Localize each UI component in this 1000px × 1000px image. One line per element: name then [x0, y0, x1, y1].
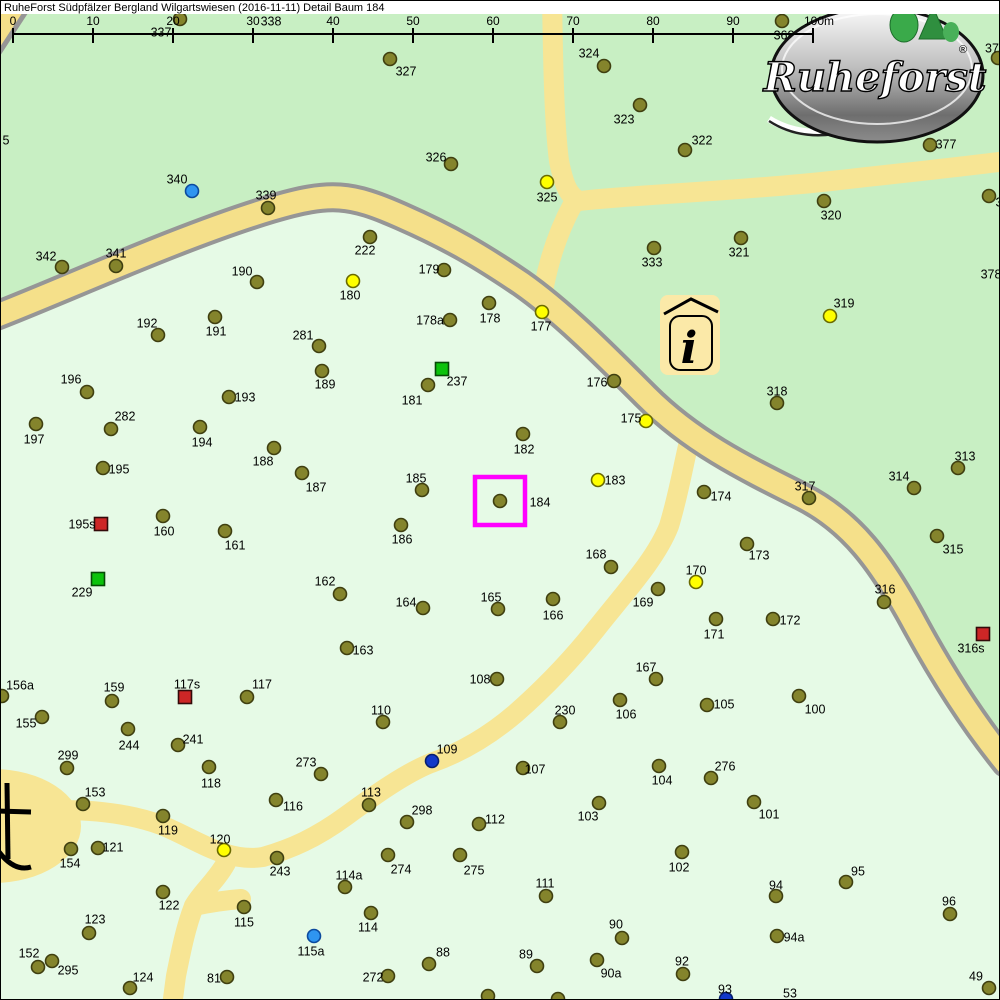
tree-label: 166	[543, 609, 564, 623]
tree-marker-159[interactable]	[106, 695, 119, 708]
forest-map: i 33733836837327324323377322326325340339…	[0, 0, 1000, 1000]
tree-label: 316s	[957, 642, 984, 656]
tree-label: 181	[402, 394, 423, 408]
tree-marker-103[interactable]	[593, 797, 606, 810]
tree-label: 237	[447, 375, 468, 389]
tree-marker-186[interactable]	[395, 519, 408, 532]
tree-marker-111[interactable]	[540, 890, 553, 903]
tree-marker-325[interactable]	[541, 176, 554, 189]
tree-marker-299[interactable]	[61, 762, 74, 775]
tree-label: 106	[616, 708, 637, 722]
tree-label: 327	[396, 65, 417, 79]
tree-marker-162[interactable]	[334, 588, 347, 601]
tree-label: 153	[85, 786, 106, 800]
tree-label: 193	[235, 391, 256, 405]
tree-marker-118[interactable]	[203, 761, 216, 774]
tree-label: 108	[470, 673, 491, 687]
tree-marker-168[interactable]	[605, 561, 618, 574]
tree-marker-115[interactable]	[238, 901, 251, 914]
tree-marker-281[interactable]	[313, 340, 326, 353]
tree-label: 179	[419, 263, 440, 277]
tree-label: 320	[821, 209, 842, 223]
tree-label: 123	[85, 913, 106, 927]
tree-marker-184[interactable]	[494, 495, 507, 508]
tree-marker-164[interactable]	[417, 602, 430, 615]
tree-marker-181[interactable]	[422, 379, 435, 392]
tree-label: 118	[201, 777, 221, 791]
tree-label: 117s	[174, 678, 200, 692]
tree-label: 95	[851, 865, 865, 879]
tree-label: 187	[306, 481, 327, 495]
tree-marker-154[interactable]	[65, 843, 78, 856]
tree-label: 244	[119, 739, 140, 753]
tree-label: 230	[555, 704, 576, 718]
tree-label: 192	[137, 317, 158, 331]
tree-label: 177	[531, 320, 552, 334]
tree-label: 170	[686, 564, 707, 578]
tree-marker-339[interactable]	[262, 202, 275, 215]
tree-marker-106[interactable]	[614, 694, 627, 707]
tree-marker-177[interactable]	[536, 306, 549, 319]
tree-label: 169	[633, 596, 654, 610]
tree-marker-340[interactable]	[186, 185, 199, 198]
tree-marker-90[interactable]	[616, 932, 629, 945]
tree-label: 282	[115, 410, 136, 424]
tree-label: 161	[225, 539, 246, 553]
tree-marker-108[interactable]	[491, 673, 504, 686]
tree-label: 318	[767, 385, 788, 399]
tree-label: 96	[942, 895, 956, 909]
map-title: RuheForst Südpfälzer Bergland Wilgartswi…	[4, 2, 385, 14]
tree-marker-116[interactable]	[270, 794, 283, 807]
tree-marker-96[interactable]	[944, 908, 957, 921]
tree-marker-104[interactable]	[653, 760, 666, 773]
scale-tick-label: 100m	[804, 14, 834, 28]
tree-label: 122	[159, 899, 180, 913]
tree-label: 163	[353, 644, 374, 658]
tree-label: 90a	[601, 967, 622, 981]
tree-label: 241	[183, 733, 204, 747]
info-icon-glyph: i	[681, 323, 698, 374]
scale-tick-label: 20	[166, 14, 180, 28]
tree-label: 175	[621, 412, 642, 426]
tree-label: 3	[996, 196, 1000, 210]
tree-marker-114[interactable]	[365, 907, 378, 920]
tree-marker-322[interactable]	[679, 144, 692, 157]
tree-marker-197[interactable]	[30, 418, 43, 431]
tree-marker-174[interactable]	[698, 486, 711, 499]
tree-label: 174	[711, 490, 732, 504]
tree-label: 316	[875, 583, 896, 597]
tree-label: 49	[969, 970, 983, 984]
tree-marker-122[interactable]	[157, 886, 170, 899]
tree-label: 162	[315, 575, 336, 589]
tree-marker-49[interactable]	[983, 982, 996, 995]
tree-marker-182[interactable]	[517, 428, 530, 441]
tree-marker-274[interactable]	[382, 849, 395, 862]
tree-label: 164	[396, 596, 417, 610]
tree-label: 113	[361, 786, 381, 800]
scale-tick-label: 80	[646, 14, 660, 28]
tree-label: 115	[234, 916, 254, 930]
tree-label: 173	[749, 549, 770, 563]
tree-label: 109	[437, 743, 458, 757]
tree-label: 159	[104, 681, 125, 695]
tree-label: 313	[955, 450, 976, 464]
tree-label: 37	[985, 42, 999, 56]
tree-label: 184	[530, 496, 551, 510]
tree-label: 92	[675, 955, 689, 969]
map-canvas: i 33733836837327324323377322326325340339…	[1, 1, 1000, 1000]
tree-label: 165	[481, 591, 502, 605]
tree-label: 176	[587, 376, 608, 390]
scale-tick-label: 60	[486, 14, 500, 28]
tree-label: 90	[609, 918, 623, 932]
tree-marker-172[interactable]	[767, 613, 780, 626]
tree-label: 81	[207, 972, 221, 986]
tree-label: 189	[315, 378, 336, 392]
tree-label: 180	[340, 289, 361, 303]
tree-label: 195s	[68, 518, 95, 532]
tree-marker-314[interactable]	[908, 482, 921, 495]
tree-label: 183	[605, 474, 626, 488]
tree-marker-117[interactable]	[241, 691, 254, 704]
scale-tick-label: 90	[726, 14, 740, 28]
tree-label: 114a	[336, 869, 363, 883]
tree-label: 324	[579, 47, 600, 61]
tree-label: 53	[783, 987, 797, 1000]
tree-marker-3[interactable]	[983, 190, 996, 203]
tree-marker-319[interactable]	[824, 310, 837, 323]
tree-marker-282[interactable]	[105, 423, 118, 436]
tree-marker-123[interactable]	[83, 927, 96, 940]
tree-label: 116	[283, 800, 303, 814]
cross-vertical	[7, 783, 8, 859]
logo-registered-mark: ®	[959, 44, 967, 56]
tree-label: 229	[72, 586, 93, 600]
tree-marker-119[interactable]	[157, 810, 170, 823]
tree-marker-171[interactable]	[710, 613, 723, 626]
tree-label: 272	[363, 971, 384, 985]
tree-label: 112	[485, 813, 505, 827]
tree-marker-326[interactable]	[445, 158, 458, 171]
tree-marker-163[interactable]	[341, 642, 354, 655]
tree-marker-295[interactable]	[46, 955, 59, 968]
tree-label: 172	[780, 614, 801, 628]
tree-label: 276	[715, 760, 736, 774]
tree-marker-166[interactable]	[547, 593, 560, 606]
tree-marker-195s[interactable]	[95, 518, 108, 531]
tree-label: 377	[936, 138, 957, 152]
tree-marker-244[interactable]	[122, 723, 135, 736]
tree-label: 185	[406, 472, 427, 486]
tree-label: 167	[636, 661, 657, 675]
tree-marker-112[interactable]	[473, 818, 486, 831]
tree-label: 104	[652, 774, 673, 788]
tree-label: 103	[578, 810, 599, 824]
scale-tick-label: 40	[326, 14, 340, 28]
tree-marker-81[interactable]	[221, 971, 234, 984]
tree-marker-183[interactable]	[592, 474, 605, 487]
tree-label: 111	[535, 877, 554, 891]
tree-marker-94a[interactable]	[771, 930, 784, 943]
tree-label: 323	[614, 113, 635, 127]
tree-marker-unlabeled[interactable]	[482, 990, 495, 1000]
tree-label: 171	[704, 628, 725, 642]
tree-marker-323[interactable]	[634, 99, 647, 112]
tree-marker-180[interactable]	[347, 275, 360, 288]
tree-marker-368[interactable]	[776, 15, 789, 28]
tree-label: 326	[426, 151, 447, 165]
tree-marker-341[interactable]	[110, 260, 123, 273]
tree-label: 319	[834, 297, 855, 311]
logo-brand-text: Ruheforst	[763, 54, 987, 101]
tree-marker-117s[interactable]	[179, 691, 192, 704]
tree-label: 325	[537, 191, 558, 205]
tree-label: 88	[436, 946, 450, 960]
tree-marker-194[interactable]	[194, 421, 207, 434]
tree-marker-178a[interactable]	[444, 314, 457, 327]
tree-label: 178a	[416, 314, 444, 328]
scale-tick-label: 50	[406, 14, 420, 28]
tree-marker-189[interactable]	[316, 365, 329, 378]
tree-label: 155	[16, 717, 37, 731]
tree-label: 186	[392, 533, 413, 547]
tree-label: 178	[480, 312, 501, 326]
tree-label: 160	[154, 525, 175, 539]
tree-label: 115a	[298, 945, 325, 959]
path-south-stub	[194, 899, 241, 906]
tree-label: 124	[133, 971, 154, 985]
tree-marker-88[interactable]	[423, 958, 436, 971]
tree-marker-105[interactable]	[701, 699, 714, 712]
tree-label: 275	[464, 864, 485, 878]
tree-label: 194	[192, 436, 213, 450]
logo-tree-icon	[943, 22, 959, 42]
tree-marker-316s[interactable]	[977, 628, 990, 641]
tree-marker-377[interactable]	[924, 139, 937, 152]
tree-label: 152	[19, 947, 40, 961]
tree-label: 110	[371, 704, 391, 718]
tree-marker-222[interactable]	[364, 231, 377, 244]
tree-marker-169[interactable]	[652, 583, 665, 596]
tree-label: 295	[58, 964, 79, 978]
tree-label: 317	[795, 480, 816, 494]
tree-label: 100	[805, 703, 826, 717]
tree-label: 93	[718, 983, 732, 997]
tree-label: 154	[60, 857, 81, 871]
tree-label: 339	[256, 189, 277, 203]
tree-label: 102	[669, 861, 690, 875]
tree-label: 188	[253, 455, 274, 469]
tree-label: 120	[210, 833, 231, 847]
tree-marker-178[interactable]	[483, 297, 496, 310]
tree-label: 321	[729, 246, 750, 260]
tree-marker-243[interactable]	[271, 852, 284, 865]
tree-label: 342	[36, 250, 57, 264]
tree-marker-113[interactable]	[363, 799, 376, 812]
tree-marker-327[interactable]	[384, 53, 397, 66]
tree-label: 322	[692, 134, 713, 148]
tree-marker-187[interactable]	[296, 467, 309, 480]
tree-label: 121	[103, 841, 124, 855]
tree-label: 333	[642, 256, 663, 270]
tree-marker-316[interactable]	[878, 596, 891, 609]
info-icon[interactable]: i	[660, 295, 720, 375]
scale-tick-label: 10	[86, 14, 100, 28]
tree-marker-196[interactable]	[81, 386, 94, 399]
cross-horizontal	[1, 811, 31, 812]
tree-label: 191	[206, 325, 227, 339]
tree-marker-229[interactable]	[92, 573, 105, 586]
tree-label: 117	[252, 678, 272, 692]
tree-marker-193[interactable]	[223, 391, 236, 404]
tree-label: 281	[293, 329, 314, 343]
tree-label: 315	[943, 543, 964, 557]
tree-marker-315[interactable]	[931, 530, 944, 543]
tree-marker-191[interactable]	[209, 311, 222, 324]
scale-tick-label: 0	[10, 14, 17, 28]
tree-marker-175[interactable]	[640, 415, 653, 428]
tree-marker-161[interactable]	[219, 525, 232, 538]
tree-label: 168	[586, 548, 607, 562]
tree-marker-272[interactable]	[382, 970, 395, 983]
tree-marker-155[interactable]	[36, 711, 49, 724]
scale-tick-label: 30	[246, 14, 260, 28]
tree-label: 105	[714, 698, 735, 712]
tree-marker-unlabeled[interactable]	[552, 993, 565, 1000]
tree-label: 119	[158, 824, 178, 838]
tree-marker-188[interactable]	[268, 442, 281, 455]
tree-marker-160[interactable]	[157, 510, 170, 523]
tree-marker-115a[interactable]	[308, 930, 321, 943]
tree-marker-195[interactable]	[97, 462, 110, 475]
tree-marker-275[interactable]	[454, 849, 467, 862]
tree-label: 243	[270, 865, 291, 879]
tree-marker-102[interactable]	[676, 846, 689, 859]
tree-label: 94a	[784, 931, 805, 945]
tree-label: 190	[232, 265, 253, 279]
tree-label: 101	[759, 808, 780, 822]
tree-marker-273[interactable]	[315, 768, 328, 781]
tree-label: 340	[167, 173, 188, 187]
tree-label: 338	[261, 15, 282, 29]
tree-marker-190[interactable]	[251, 276, 264, 289]
tree-label: 107	[525, 763, 546, 777]
tree-marker-179[interactable]	[438, 264, 451, 277]
tree-label: 197	[24, 433, 45, 447]
tree-label: 378	[981, 268, 1000, 282]
tree-label: 222	[355, 244, 376, 258]
tree-label: 89	[519, 948, 533, 962]
tree-label: 196	[61, 373, 82, 387]
tree-label: 182	[514, 443, 535, 457]
tree-marker-152[interactable]	[32, 961, 45, 974]
tree-marker-342[interactable]	[56, 261, 69, 274]
tree-marker-333[interactable]	[648, 242, 661, 255]
tree-marker-92[interactable]	[677, 968, 690, 981]
tree-label: 156a	[6, 679, 34, 693]
tree-label: 273	[296, 756, 317, 770]
tree-marker-324[interactable]	[598, 60, 611, 73]
tree-label: 314	[889, 470, 910, 484]
tree-label: 195	[109, 463, 130, 477]
tree-label: 114	[358, 921, 378, 935]
tree-marker-321[interactable]	[735, 232, 748, 245]
tree-label: 94	[769, 879, 783, 893]
tree-label: 5	[3, 134, 10, 148]
scale-tick-label: 70	[566, 14, 580, 28]
tree-marker-100[interactable]	[793, 690, 806, 703]
tree-marker-90a[interactable]	[591, 954, 604, 967]
tree-marker-176[interactable]	[608, 375, 621, 388]
tree-label: 341	[106, 247, 127, 261]
tree-label: 298	[412, 804, 433, 818]
tree-marker-320[interactable]	[818, 195, 831, 208]
tree-label: 274	[391, 863, 412, 877]
tree-label: 299	[58, 749, 79, 763]
